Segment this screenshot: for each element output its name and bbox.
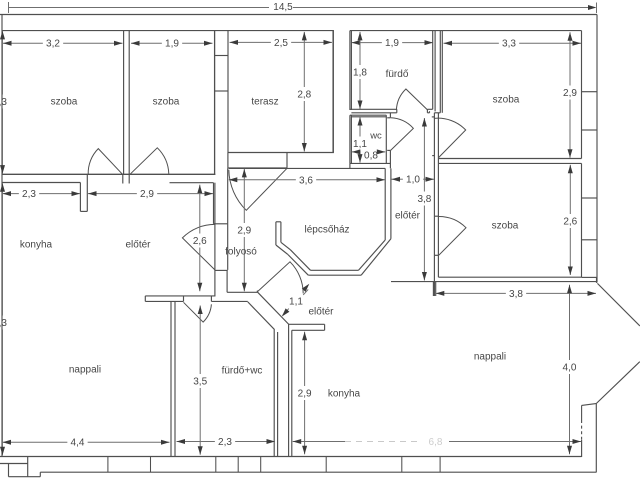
- svg-text:szoba: szoba: [492, 221, 519, 232]
- svg-text:14,5: 14,5: [273, 2, 293, 13]
- svg-text:2,9: 2,9: [563, 88, 577, 99]
- svg-text:folyosó: folyosó: [225, 247, 257, 258]
- svg-text:1,9: 1,9: [165, 39, 179, 50]
- svg-text:nappali: nappali: [69, 365, 101, 376]
- svg-text:1,1: 1,1: [289, 297, 303, 308]
- svg-text:1,0: 1,0: [406, 175, 420, 186]
- svg-text:konyha: konyha: [20, 240, 53, 251]
- svg-text:2,3: 2,3: [0, 97, 7, 108]
- svg-text:előtér: előtér: [395, 211, 421, 222]
- svg-text:4,4: 4,4: [71, 438, 85, 449]
- svg-text:3,6: 3,6: [299, 175, 313, 186]
- svg-text:szoba: szoba: [51, 97, 78, 108]
- svg-text:fürdő: fürdő: [386, 69, 409, 80]
- svg-text:2,9: 2,9: [237, 226, 251, 237]
- svg-text:3,8: 3,8: [509, 289, 523, 300]
- svg-text:2,9: 2,9: [298, 389, 312, 400]
- svg-text:3,2: 3,2: [46, 39, 60, 50]
- svg-text:1,9: 1,9: [385, 38, 399, 49]
- svg-text:előtér: előtér: [308, 307, 334, 318]
- svg-text:3,8: 3,8: [417, 194, 431, 205]
- svg-text:fürdő+wc: fürdő+wc: [222, 366, 263, 377]
- svg-text:wc: wc: [369, 131, 382, 142]
- svg-text:3,3: 3,3: [502, 39, 516, 50]
- svg-text:2,8: 2,8: [297, 90, 311, 101]
- svg-text:2,6: 2,6: [563, 217, 577, 228]
- svg-text:2,6: 2,6: [193, 236, 207, 247]
- svg-text:2,5: 2,5: [274, 38, 288, 49]
- svg-text:3,3: 3,3: [0, 318, 7, 329]
- svg-text:lépcsőház: lépcsőház: [304, 225, 349, 236]
- svg-text:1,8: 1,8: [353, 68, 367, 79]
- svg-text:0,8: 0,8: [364, 150, 378, 161]
- svg-text:4,0: 4,0: [563, 363, 577, 374]
- svg-text:előtér: előtér: [125, 240, 151, 251]
- svg-text:6,8: 6,8: [429, 437, 443, 448]
- svg-text:szoba: szoba: [493, 95, 520, 106]
- svg-text:konyha: konyha: [328, 389, 361, 400]
- svg-text:nappali: nappali: [474, 352, 506, 363]
- svg-text:terasz: terasz: [251, 97, 278, 108]
- svg-text:2,9: 2,9: [140, 189, 154, 200]
- svg-text:2,3: 2,3: [22, 189, 36, 200]
- svg-text:2,3: 2,3: [218, 437, 232, 448]
- svg-text:szoba: szoba: [153, 97, 180, 108]
- svg-text:3,5: 3,5: [193, 377, 207, 388]
- svg-text:1,1: 1,1: [353, 139, 367, 150]
